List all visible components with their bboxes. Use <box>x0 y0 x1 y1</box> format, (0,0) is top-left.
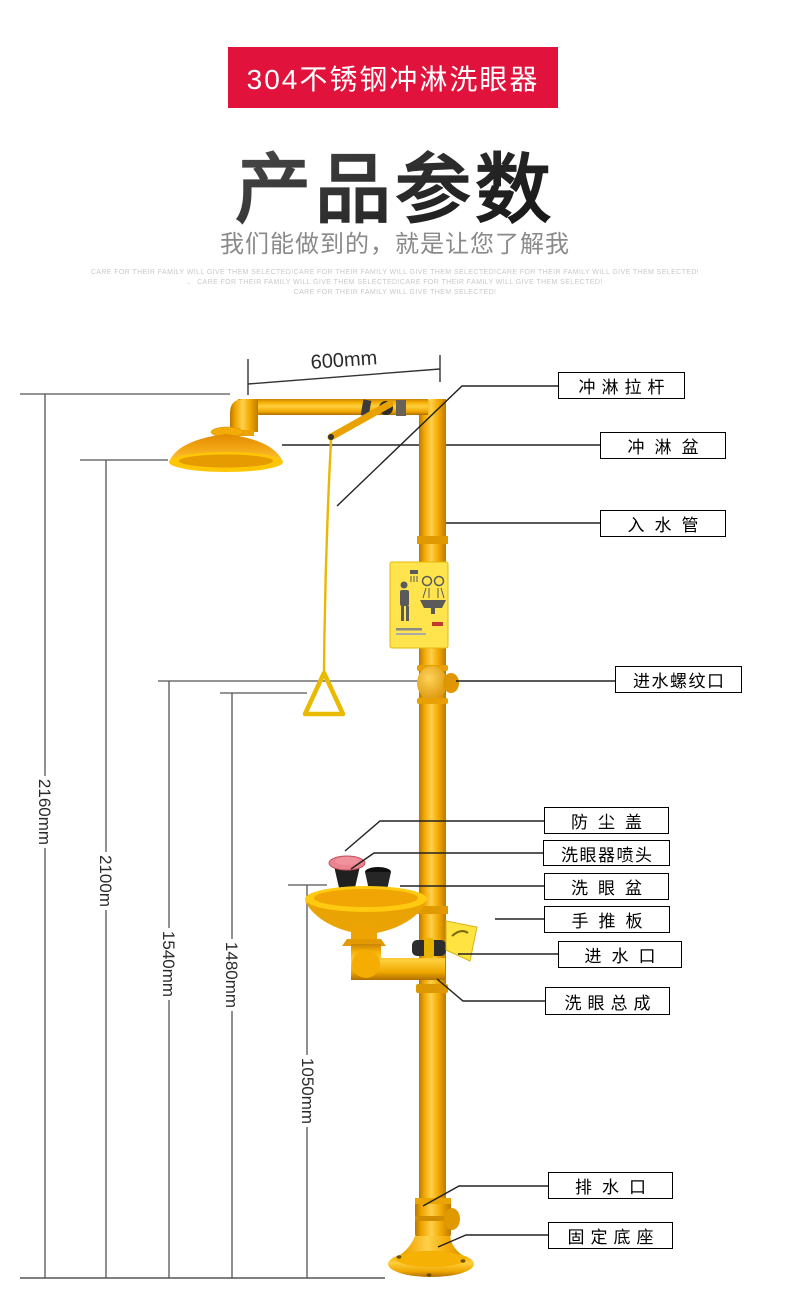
sign-caption-bar <box>396 633 426 635</box>
label-water-inlet: 进水口 <box>558 941 682 968</box>
lever-end-cap <box>328 434 334 440</box>
label-drain-outlet: 排水口 <box>548 1172 673 1199</box>
label-shower-pull-rod: 冲淋拉杆 <box>558 372 685 399</box>
leader-eyewash-assembly <box>437 979 545 1001</box>
port-ring-bottom <box>417 698 448 704</box>
product-diagram: 冲淋拉杆 冲淋盆 入水管 进水螺纹口 防尘盖 洗眼器喷头 洗眼盆 手推板 进水口… <box>0 0 790 1292</box>
sign-caption-bar <box>396 628 422 631</box>
eyewash-unit <box>305 856 477 993</box>
pole-coupling-upper <box>417 536 448 544</box>
product-parameters-page: 304不锈钢冲淋洗眼器 产品参数 我们能做到的，就是让您了解我 CARE FOR… <box>0 0 790 1292</box>
base-bolt-hole <box>397 1255 402 1258</box>
label-hand-push-plate: 手推板 <box>544 906 670 933</box>
valve-knob <box>424 938 434 958</box>
pole-coupling-below-eyewash <box>416 984 448 993</box>
label-dust-cover: 防尘盖 <box>544 807 669 834</box>
leader-eyewash-spray-head <box>351 853 543 869</box>
eyewash-bowl-inner <box>314 889 418 907</box>
drain-outlet-nub <box>444 1208 460 1230</box>
dimension-inlet-port-height: 1540mm <box>157 928 179 1000</box>
base-bolt-hole <box>461 1259 466 1262</box>
hand-push-tag <box>446 921 477 961</box>
dimension-lines <box>20 394 419 1278</box>
triangle-pull-handle <box>305 673 343 714</box>
arm-union <box>396 400 406 416</box>
dimension-arm-width: 600mm <box>307 346 381 376</box>
pull-cord <box>324 440 331 671</box>
dimension-shower-head-height: 2100m <box>94 852 116 910</box>
label-fixed-base: 固定底座 <box>548 1222 673 1249</box>
pipe-elbow <box>352 950 380 978</box>
label-shower-head-basin: 冲淋盆 <box>600 432 726 459</box>
label-inlet-threaded-port: 进水螺纹口 <box>615 666 742 693</box>
dimension-eyewash-height: 1050mm <box>296 1055 318 1127</box>
equipment-shower-eyewash-station <box>169 399 477 1277</box>
safety-sign-plate <box>390 562 448 648</box>
label-eyewash-spray-head: 洗眼器喷头 <box>543 840 670 866</box>
base-bolt-hole <box>427 1273 432 1276</box>
top-left-elbow <box>230 399 258 432</box>
sign-red-mark <box>432 622 443 626</box>
label-inlet-pipe: 入水管 <box>600 510 726 537</box>
base-plate-top <box>396 1251 466 1267</box>
dimension-pull-handle-height: 1480mm <box>220 939 242 1011</box>
inlet-port-ball <box>417 666 447 700</box>
shower-dome-inner <box>179 455 273 468</box>
dust-cover-cap-top <box>335 857 359 865</box>
bowl-stem <box>351 926 377 940</box>
leader-fixed-base <box>438 1235 548 1247</box>
label-eyewash-bowl: 洗眼盆 <box>544 873 669 900</box>
diagram-canvas <box>0 0 790 1292</box>
label-eyewash-assembly: 洗眼总成 <box>545 987 670 1015</box>
dimension-total-height: 2160mm <box>33 776 55 848</box>
inlet-port-nub <box>443 673 459 693</box>
